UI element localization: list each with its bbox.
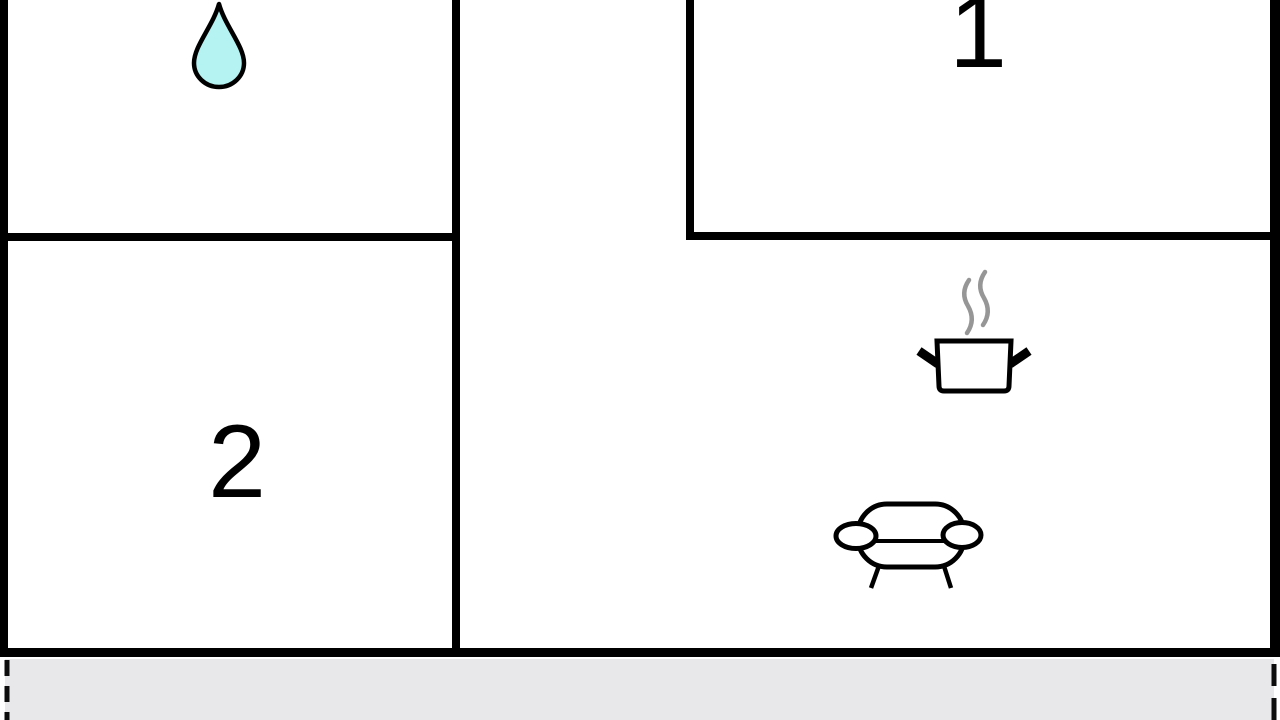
- room-living-kitchen: [460, 240, 1270, 648]
- wall-right: [1270, 0, 1280, 657]
- wall-center-vertical: [452, 0, 460, 657]
- wall-room1-bottom: [686, 232, 1280, 240]
- room-2-label: 2: [208, 404, 266, 520]
- wall-room1-left: [686, 0, 694, 240]
- wall-left: [0, 0, 8, 657]
- wall-topleft-horizontal: [0, 233, 460, 241]
- wall-bottom: [0, 648, 1280, 657]
- floor-plan: 1 2: [0, 0, 1280, 720]
- terrace-area: [5, 659, 1274, 720]
- room-1-label: 1: [949, 0, 1007, 90]
